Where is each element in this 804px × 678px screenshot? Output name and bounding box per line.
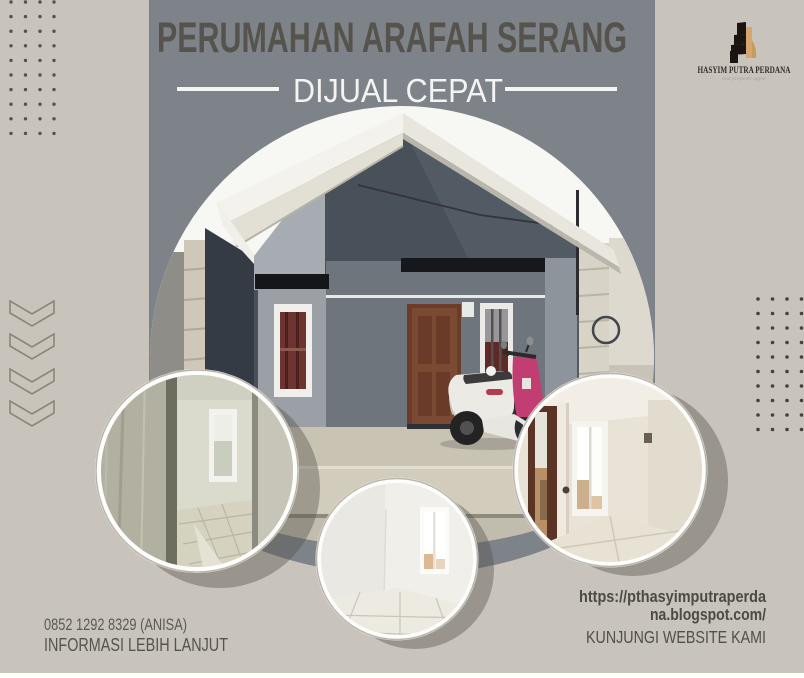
svg-text:DIJUAL CEPAT: DIJUAL CEPAT [293,73,503,110]
svg-text:KUNJUNGI WEBSITE KAMI: KUNJUNGI WEBSITE KAMI [586,627,766,647]
svg-text:PERUMAHAN ARAFAH SERANG: PERUMAHAN ARAFAH SERANG [157,14,627,62]
svg-text:https://pthasyimputraperda: https://pthasyimputraperda [579,587,766,606]
svg-text:INFORMASI LEBIH LANJUT: INFORMASI LEBIH LANJUT [44,635,228,655]
svg-text:na.blogspot.com/: na.blogspot.com/ [650,605,766,624]
svg-text:real property agent: real property agent [722,76,766,82]
svg-text:0852 1292 8329 (ANISA): 0852 1292 8329 (ANISA) [44,616,187,634]
svg-text:HASYIM PUTRA PERDANA: HASYIM PUTRA PERDANA [698,66,791,76]
